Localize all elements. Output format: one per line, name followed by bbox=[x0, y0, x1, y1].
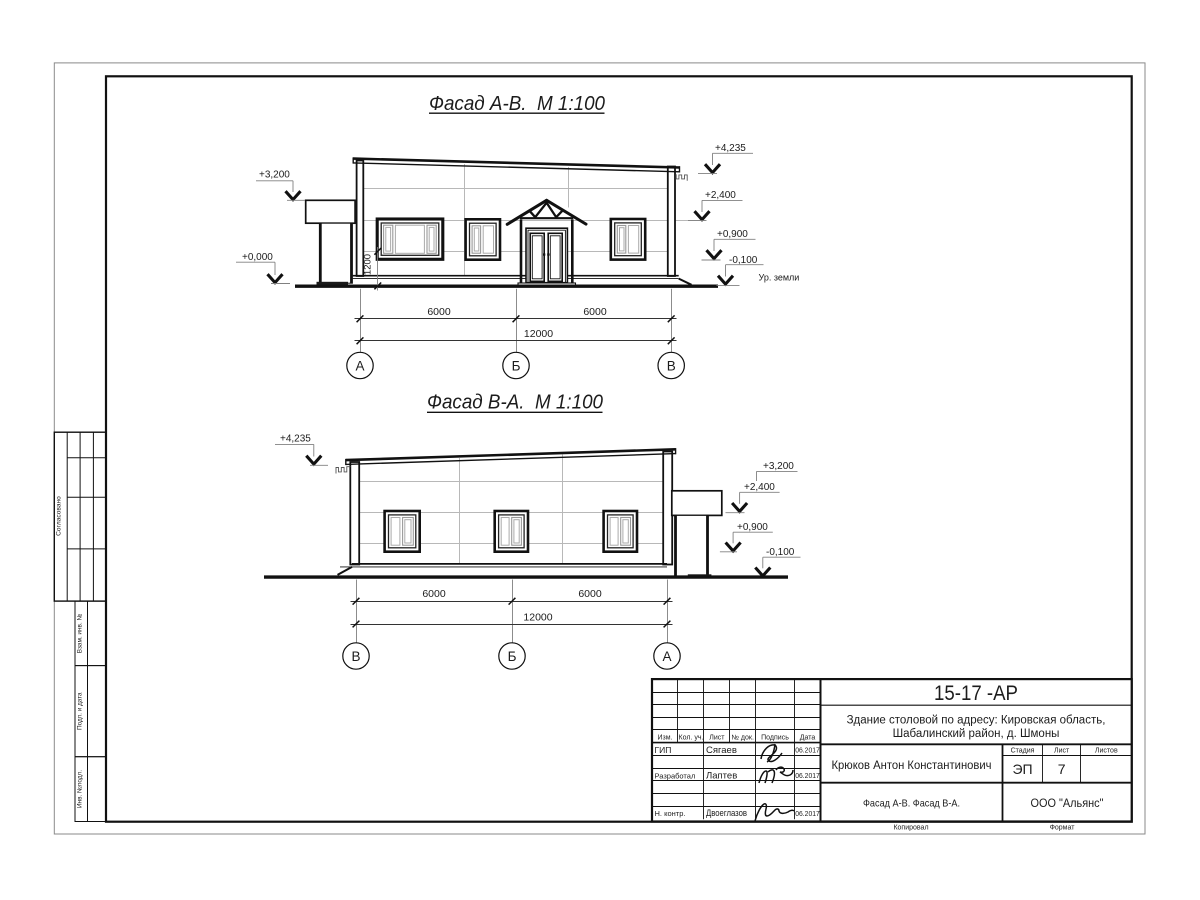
svg-text:ГИП: ГИП bbox=[655, 745, 672, 755]
svg-text:ООО "Альянс": ООО "Альянс" bbox=[1031, 796, 1104, 810]
svg-text:Разработал: Разработал bbox=[655, 771, 696, 780]
svg-text:Лист: Лист bbox=[709, 735, 725, 742]
svg-text:-0,100: -0,100 bbox=[766, 547, 795, 558]
svg-text:Кол. уч.: Кол. уч. bbox=[679, 735, 704, 742]
svg-text:+4,235: +4,235 bbox=[280, 434, 311, 445]
svg-text:Изм.: Изм. bbox=[658, 735, 673, 742]
svg-text:6000: 6000 bbox=[578, 588, 602, 600]
svg-text:12000: 12000 bbox=[524, 328, 553, 340]
svg-text:Согласовано: Согласовано bbox=[56, 496, 63, 536]
svg-text:Стадия: Стадия bbox=[1011, 748, 1035, 755]
svg-text:Шабалинский район, д. Шмоны: Шабалинский район, д. Шмоны bbox=[893, 728, 1060, 740]
svg-text:12000: 12000 bbox=[523, 611, 552, 623]
svg-text:1200: 1200 bbox=[363, 254, 374, 275]
svg-text:Фасад В-А. М 1:100: Фасад В-А. М 1:100 bbox=[427, 392, 603, 414]
svg-text:ЭП: ЭП bbox=[1012, 761, 1032, 777]
svg-text:№ док.: № док. bbox=[731, 735, 753, 742]
svg-text:Формат: Формат bbox=[1050, 825, 1076, 832]
svg-text:06.2017: 06.2017 bbox=[795, 809, 820, 818]
svg-text:Взам. инв. №: Взам. инв. № bbox=[77, 614, 84, 654]
svg-text:Фасад А-В. Фасад В-А.: Фасад А-В. Фасад В-А. bbox=[863, 798, 960, 810]
svg-text:Подпись: Подпись bbox=[761, 735, 789, 742]
svg-text:6000: 6000 bbox=[427, 306, 451, 318]
svg-text:6000: 6000 bbox=[422, 588, 446, 600]
svg-text:06.2017: 06.2017 bbox=[795, 746, 820, 755]
svg-text:Б: Б bbox=[508, 649, 517, 664]
svg-text:+2,400: +2,400 bbox=[705, 190, 736, 201]
svg-text:Инв. №подл.: Инв. №подл. bbox=[77, 770, 84, 808]
svg-text:+2,400: +2,400 bbox=[744, 482, 775, 493]
svg-text:-0,100: -0,100 bbox=[729, 255, 758, 266]
svg-text:В: В bbox=[351, 649, 360, 664]
svg-text:7: 7 bbox=[1058, 761, 1066, 777]
svg-text:+3,200: +3,200 bbox=[763, 461, 794, 472]
svg-text:А: А bbox=[355, 358, 364, 373]
svg-text:Б: Б bbox=[512, 358, 521, 373]
svg-text:+0,000: +0,000 bbox=[242, 252, 273, 263]
svg-text:Ур. земли: Ур. земли bbox=[759, 273, 800, 283]
svg-text:Листов: Листов bbox=[1095, 748, 1118, 755]
svg-text:Здание столовой по адресу: Кир: Здание столовой по адресу: Кировская обл… bbox=[847, 715, 1106, 727]
svg-text:Лист: Лист bbox=[1054, 748, 1070, 755]
svg-text:15-17 -АР: 15-17 -АР bbox=[934, 682, 1018, 705]
svg-text:06.2017: 06.2017 bbox=[795, 771, 820, 780]
svg-text:Подп. и дата: Подп. и дата bbox=[77, 692, 84, 730]
svg-text:Двоеглазов: Двоеглазов bbox=[706, 808, 747, 819]
svg-text:Н. контр.: Н. контр. bbox=[655, 809, 686, 818]
svg-text:+0,900: +0,900 bbox=[737, 522, 768, 533]
svg-text:Крюков Антон Константинович: Крюков Антон Константинович bbox=[832, 758, 992, 772]
svg-text:+4,235: +4,235 bbox=[715, 143, 746, 154]
svg-text:В: В bbox=[667, 358, 676, 373]
svg-text:6000: 6000 bbox=[583, 306, 607, 318]
svg-text:А: А bbox=[662, 649, 671, 664]
svg-text:Дата: Дата bbox=[800, 735, 816, 742]
svg-text:Фасад А-В. М 1:100: Фасад А-В. М 1:100 bbox=[429, 93, 605, 115]
svg-text:+3,200: +3,200 bbox=[259, 170, 290, 181]
svg-text:+0,900: +0,900 bbox=[717, 229, 748, 240]
svg-text:Лаптев: Лаптев bbox=[706, 770, 737, 781]
svg-text:Сягаев: Сягаев bbox=[706, 745, 737, 756]
svg-text:Копировал: Копировал bbox=[893, 825, 928, 832]
